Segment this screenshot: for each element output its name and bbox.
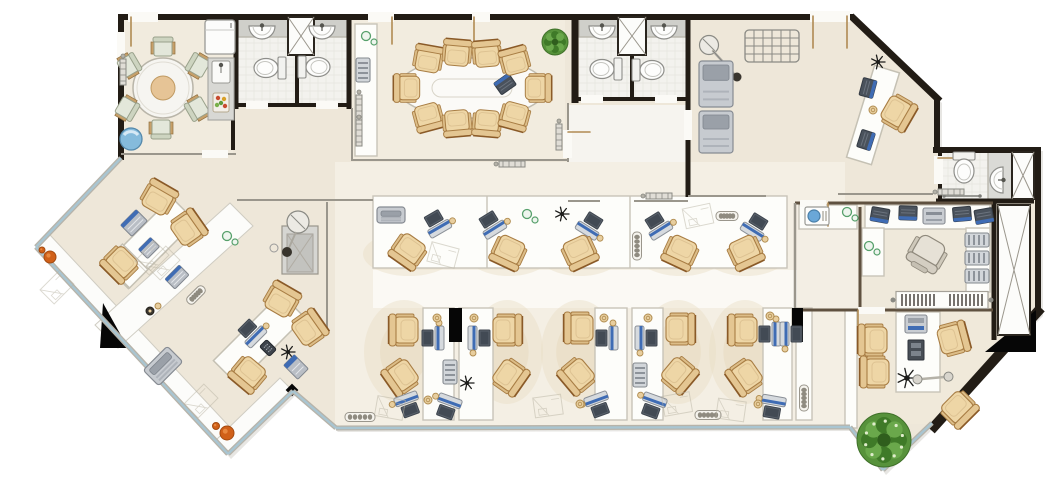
radiator-icon [356,115,362,146]
desk-tray [433,314,441,322]
plant-icon [857,413,911,467]
column [449,308,462,342]
door-opening [934,156,943,184]
desk-tray [576,400,584,408]
floor-plan-canvas [0,0,1046,500]
office-chair [412,43,445,74]
floor-lamp [213,423,220,430]
office-chair [525,74,551,103]
door-opening [684,110,692,140]
radiator-icon [933,189,964,195]
copier-icon [699,111,733,153]
office-device [965,251,989,265]
shaft [618,17,646,55]
shaft [1012,152,1034,199]
printer-icon [923,208,945,224]
toilet-icon [953,152,975,183]
floor-plan [0,0,1046,500]
floor-lamp [44,251,56,263]
door-opening [368,12,394,22]
desk-tray [754,400,762,408]
office-chair [860,356,889,388]
office-device [356,58,370,82]
workstation-strip [459,308,493,420]
office-device [965,233,989,247]
desk-tray [470,314,478,322]
bookshelf [891,292,994,309]
vent-grille [800,385,809,411]
desk-tray [424,396,432,404]
office-chair [389,314,418,346]
toilet-icon [590,58,622,80]
desk-tray [869,106,877,114]
door-opening [858,307,885,314]
toilet-icon [298,56,330,78]
break-chair [151,37,175,56]
office-chair [728,314,757,346]
vent-grille [345,413,375,422]
office-chair [442,109,473,138]
refrigerator-icon [205,20,235,54]
office-chair [442,38,473,67]
laptop-icon [870,207,890,224]
desk-tray [766,312,774,320]
office-device [443,360,457,384]
vent-grille [633,232,642,260]
toilet-icon [254,57,286,79]
stereo-unit [908,340,924,360]
door-opening [800,200,826,207]
office-chair [564,312,593,344]
break-chair [149,120,173,139]
floor-lamp [39,247,45,253]
office-chair [666,313,695,345]
door-opening [563,130,572,158]
door-opening [316,101,338,109]
desk-tray [644,314,652,322]
toilet-icon [632,59,664,81]
copier-icon [377,207,405,223]
office-device [965,269,989,283]
floor-lamp [220,426,234,440]
kitchen-counter-sink [208,58,234,120]
radiator-icon [556,119,562,150]
shaft [998,205,1030,335]
desk-tray [600,314,608,322]
radiator-icon [120,54,126,85]
break-table [133,58,193,118]
potted-plant-icon [542,29,568,55]
office-chair [493,314,522,346]
radiator-icon [494,161,525,167]
door-opening [810,11,850,22]
exec-side-table [862,228,884,276]
laptop-icon [974,208,994,225]
office-chair [858,324,887,356]
water-cooler [805,207,829,225]
door-opening [655,95,677,103]
waste-bin [120,128,142,150]
copier-icon [699,61,733,107]
door-opening [246,101,268,109]
office-device [633,363,647,387]
office-chair [393,74,419,103]
door-opening [202,150,228,158]
radiator-icon [641,193,672,199]
vent-grille [716,212,738,221]
laptop-icon [899,206,917,221]
door-opening [128,12,158,22]
laptop-icon [952,206,971,222]
printer-icon [905,315,927,333]
shaft [288,17,314,55]
partition [845,310,857,428]
open-office-aisle [373,270,845,308]
door-opening [581,95,603,103]
